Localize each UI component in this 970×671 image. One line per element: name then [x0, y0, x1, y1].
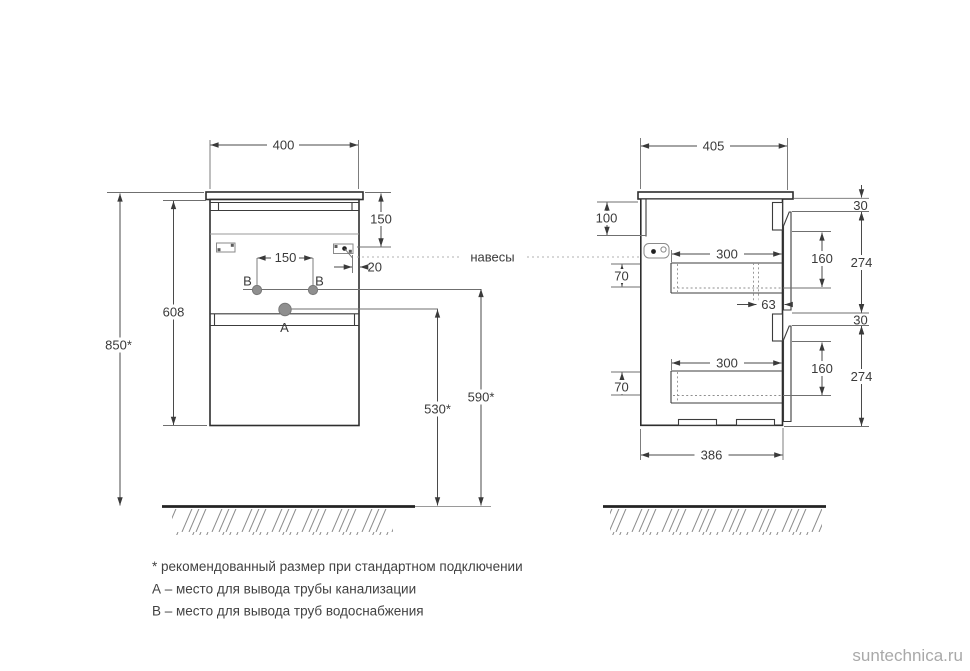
dim-front-supply-height: 590* — [462, 289, 501, 506]
label-b-left: B — [243, 274, 252, 289]
svg-text:590*: 590* — [468, 390, 495, 405]
technical-drawing-page: B B A 400 850* 608 — [0, 0, 970, 671]
front-view: B B A 400 850* 608 — [101, 138, 501, 506]
svg-text:274: 274 — [851, 255, 873, 270]
svg-text:63: 63 — [761, 297, 775, 312]
svg-text:386: 386 — [701, 448, 723, 463]
side-drawer1-front — [784, 212, 792, 310]
svg-text:100: 100 — [596, 211, 618, 226]
dim-front-cabinet-height: 608 — [158, 201, 207, 426]
floor — [162, 507, 826, 536]
side-wall-bracket-icon — [644, 244, 669, 259]
front-wall-bracket-left-icon — [217, 243, 236, 252]
hangers-label: навесы — [470, 250, 514, 265]
svg-text:30: 30 — [853, 198, 867, 213]
dim-front-drain-height: 530* — [418, 310, 457, 506]
dim-side-drawer-front-top: 274 — [845, 212, 879, 313]
svg-text:300: 300 — [716, 247, 738, 262]
footnote-asterisk: * рекомендованный размер при стандартном… — [152, 559, 523, 574]
svg-text:70: 70 — [614, 269, 628, 284]
svg-text:70: 70 — [614, 380, 628, 395]
dim-side-drawer-front-bottom: 274 — [845, 326, 879, 426]
svg-text:160: 160 — [811, 251, 833, 266]
dim-side-drawer-inner-top: 160 — [805, 233, 839, 288]
svg-text:850*: 850* — [105, 338, 132, 353]
dim-side-top-gap: 30 — [850, 185, 872, 225]
svg-text:530*: 530* — [424, 402, 451, 417]
svg-text:150: 150 — [275, 250, 297, 265]
dim-front-mount-height: 850* — [101, 193, 204, 506]
floor-hatch-left — [172, 509, 393, 535]
label-a: A — [280, 320, 289, 335]
side-countertop — [638, 192, 793, 199]
side-drawer2-front — [784, 326, 792, 422]
side-drawer1-rail — [773, 203, 783, 231]
dim-front-top-offset: 150 — [357, 193, 395, 248]
watermark-text: suntechnica.ru — [852, 646, 963, 665]
hangers-callout: навесы — [357, 250, 642, 265]
footnote-a: А – место для вывода трубы канализации — [152, 582, 416, 597]
svg-text:160: 160 — [811, 361, 833, 376]
svg-text:608: 608 — [163, 305, 185, 320]
side-view: 405 100 70 300 63 — [590, 138, 879, 463]
dim-side-box-offset-top: 70 — [609, 264, 640, 287]
drain-hole — [279, 303, 291, 315]
svg-text:300: 300 — [716, 356, 738, 371]
svg-text:274: 274 — [851, 369, 873, 384]
dim-front-width: 400 — [210, 138, 359, 190]
label-b-right: B — [315, 274, 324, 289]
svg-text:20: 20 — [368, 260, 382, 275]
side-foot-right — [737, 420, 775, 426]
front-countertop — [206, 192, 363, 200]
dim-side-drawer-inner-bottom: 160 — [805, 343, 839, 396]
supply-hole-left — [252, 285, 261, 294]
dim-side-back-panel: 100 — [590, 202, 646, 236]
svg-text:400: 400 — [273, 138, 295, 153]
dim-side-box-offset-bottom: 70 — [609, 372, 640, 395]
side-cabinet-body — [641, 200, 783, 426]
svg-text:405: 405 — [703, 139, 725, 154]
footnotes: * рекомендованный размер при стандартном… — [152, 559, 523, 619]
side-drawer2-rail — [773, 314, 783, 341]
dim-side-bottom-depth: 386 — [641, 428, 784, 463]
footnote-b: В – место для вывода труб водоснабжения — [152, 604, 424, 619]
vanity-dimension-drawing: B B A 400 850* 608 — [0, 0, 970, 671]
floor-hatch-right — [610, 509, 822, 535]
dim-side-depth: 405 — [641, 138, 788, 190]
svg-text:150: 150 — [370, 212, 392, 227]
side-foot-left — [679, 420, 717, 426]
svg-text:30: 30 — [853, 312, 867, 327]
